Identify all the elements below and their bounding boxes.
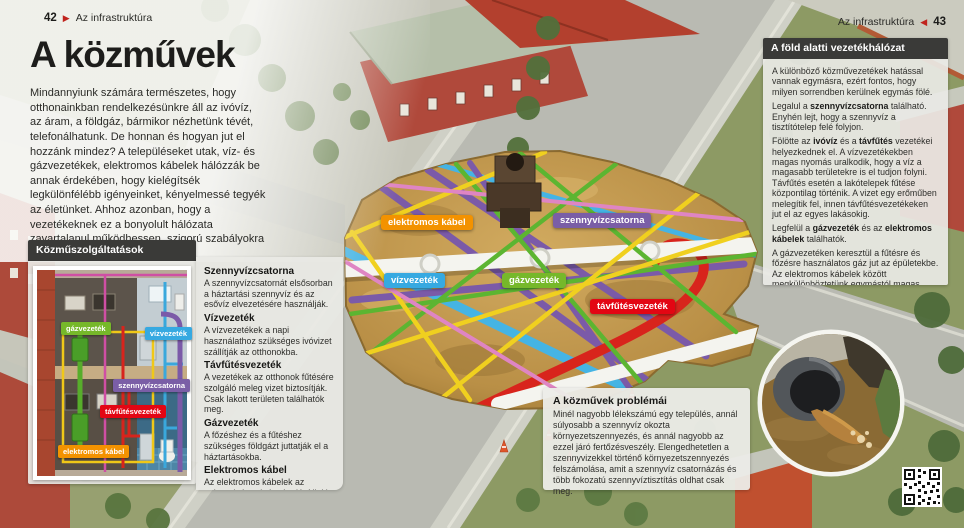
definition-term: Szennyvízcsatorna	[204, 266, 335, 277]
problems-box-title: A közművek problémái	[553, 395, 740, 407]
left-page-header: 42 ▶ Az infrastruktúra	[44, 12, 152, 24]
house-label-electric: elektromos kábel	[58, 445, 129, 458]
scene-label-water: vízvezeték	[384, 273, 445, 288]
house-label-sewage: szennyvízcsatorna	[113, 379, 190, 392]
services-box: Közműszolgáltatások	[28, 240, 196, 484]
sewage-outfall-photo	[757, 329, 905, 477]
definition-text: A szennyvízcsatornát elsősorban a háztar…	[204, 278, 335, 310]
qr-code	[902, 467, 942, 507]
house-label-heating: távfűtésvezeték	[100, 405, 166, 418]
underground-paragraph: A gázvezetéken keresztül a fűtésre és fő…	[772, 248, 939, 285]
scene-label-heating: távfűtésvezeték	[590, 299, 675, 314]
underground-paragraph: A különböző közművezetékek hatással vann…	[772, 66, 939, 97]
right-page-number: 43	[933, 16, 946, 28]
book-spread: 42 ▶ Az infrastruktúra Az infrastruktúra…	[0, 0, 964, 528]
house-label-gas: gázvezeték	[61, 322, 111, 335]
underground-box-title: A föld alatti vezetékhálózat	[763, 38, 948, 59]
services-box-title: Közműszolgáltatások	[28, 240, 196, 261]
definition-term: Vízvezeték	[204, 313, 335, 324]
right-section-label: Az infrastruktúra	[838, 16, 914, 28]
definition-term: Távfűtésvezeték	[204, 360, 335, 371]
intro-paragraph: Mindannyiunk számára természetes, hogy o…	[30, 86, 266, 262]
left-page-number: 42	[44, 12, 57, 24]
house-label-water: vízvezeték	[145, 327, 192, 340]
page-title: A közművek	[30, 36, 235, 73]
definition-term: Gázvezeték	[204, 418, 335, 429]
right-page-header: Az infrastruktúra ◀ 43	[838, 16, 946, 28]
definition-text: A vízvezetékek a napi használathoz szüks…	[204, 325, 335, 357]
scene-label-electric: elektromos kábel	[381, 215, 473, 230]
arrow-right-icon: ▶	[63, 14, 70, 23]
definition-text: A vezetékek az otthonok fűtésére szolgál…	[204, 372, 335, 415]
left-section-label: Az infrastruktúra	[76, 12, 152, 24]
underground-paragraph: Legfelül a gázvezeték és az elektromos k…	[772, 223, 939, 244]
definition-text: Az elektromos kábelek az otthonok áramig…	[204, 477, 335, 490]
scene-label-sewage: szennyvízcsatorna	[553, 213, 651, 228]
definitions-panel: Szennyvízcsatorna A szennyvízcsatornát e…	[196, 257, 343, 490]
problems-box-text: Minél nagyobb lélekszámú egy település, …	[553, 409, 740, 497]
underground-paragraph: Legalul a szennyvízcsatorna található. E…	[772, 101, 939, 132]
definition-term: Elektromos kábel	[204, 465, 335, 476]
scene-label-gas: gázvezeték	[502, 273, 566, 288]
problems-box: A közművek problémái Minél nagyobb lélek…	[543, 388, 750, 490]
underground-box: A föld alatti vezetékhálózat A különböző…	[763, 38, 948, 285]
arrow-left-icon: ◀	[920, 18, 927, 27]
definition-text: A főzéshez és a fűtéshez szükséges földg…	[204, 430, 335, 462]
underground-paragraph: Fölötte az ivóvíz és a távfűtés vezetéke…	[772, 136, 939, 219]
